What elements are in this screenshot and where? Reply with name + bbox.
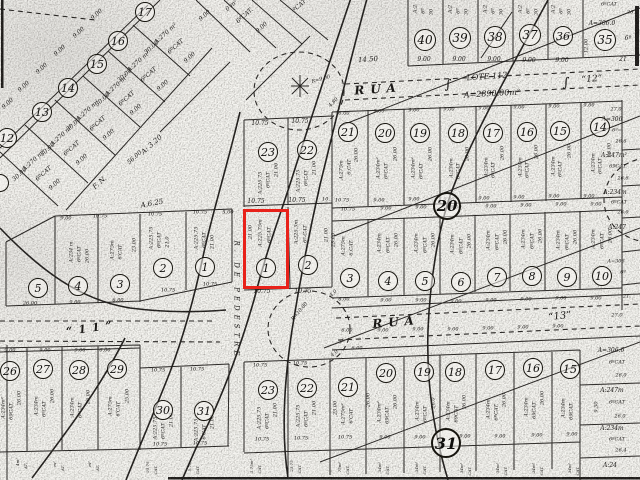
map-label: 6º-CAT [304, 225, 309, 243]
map-label: CAT. [298, 464, 302, 473]
lot-number: 2 [298, 255, 318, 275]
map-label: 6ºCAT [385, 163, 390, 179]
map-label: 26.00 [394, 147, 399, 161]
map-label: A:225.75 [150, 227, 155, 250]
map-label: A:275m [342, 236, 347, 256]
map-label: 69CAT. [570, 402, 575, 420]
map-label: 26.00 [574, 230, 579, 244]
map-label: 9.00 [583, 104, 594, 109]
map-label: ∫ [563, 77, 570, 90]
map-label: A:234m [522, 229, 527, 249]
lot-number: 35 [594, 29, 616, 51]
map-label: CAT. [504, 466, 508, 475]
map-label: 9.00 [39, 349, 50, 354]
lot-number: 39 [449, 27, 471, 49]
lot-number: 20 [433, 192, 461, 220]
map-label: 5.75 [188, 463, 192, 472]
map-label: 9.00 [590, 297, 601, 302]
lot-number: 15 [560, 359, 580, 379]
map-label: 10.75 [151, 369, 165, 374]
lot-number: 20 [375, 123, 395, 143]
map-label: 26.00 [394, 395, 399, 409]
lot-number: 8 [522, 266, 542, 286]
map-label: 30 [430, 9, 435, 15]
map-label: 9.00 [590, 203, 601, 208]
map-label: A:234m [35, 396, 40, 416]
map-label: 9.00 [520, 204, 531, 209]
map-label: 21.00 [275, 163, 280, 177]
map-label: 6ºCAT [305, 411, 310, 427]
map-label: A:234m [600, 426, 624, 432]
map-label: 6ºCAT [266, 413, 271, 429]
map-label: 9.00 [443, 108, 454, 113]
map-label: 10.75 [341, 208, 355, 213]
map-label: A:247m [600, 388, 624, 394]
map-label: 9.00 [531, 434, 542, 439]
map-label: 26.6 [617, 177, 628, 182]
map-label: A=306.0 [589, 21, 616, 27]
map-label: 10.75 [193, 442, 207, 447]
map-label: 26.00 [367, 393, 372, 407]
map-label: A:2 [484, 5, 489, 13]
map-label: 10.75 [193, 211, 207, 216]
map-label: 21.00 [325, 228, 330, 242]
lot-number: 18 [445, 362, 465, 382]
map-label: 26.00 [86, 249, 91, 263]
lot-number: 23 [258, 380, 278, 400]
map-label: 6ºCAT [387, 237, 392, 253]
map-label: 26.00 [395, 233, 400, 247]
map-label: 26.00 [429, 147, 434, 161]
map-label: A:234m [447, 401, 452, 421]
lot-number: 21 [338, 377, 358, 397]
lot-number: 17 [135, 2, 155, 22]
map-label: 6ºCAT [609, 401, 625, 406]
map-label: 9.00 [373, 199, 384, 204]
map-label: 6.00 [341, 329, 352, 334]
map-label: 6º [560, 8, 565, 14]
map-label: A:225.75 [258, 407, 263, 430]
map-label: 9.00 [566, 433, 577, 438]
map-label: 9.00 [373, 110, 384, 115]
lot-number: 40 [414, 29, 436, 51]
map-label: A:234m² [377, 157, 382, 179]
map-label: A:234m [603, 190, 627, 196]
map-label: A:234m [415, 233, 420, 253]
map-label: 26.00 [51, 389, 56, 403]
lot-number: 29 [107, 359, 127, 379]
map-label: 9.00 [555, 58, 568, 64]
map-label: 9.00 [380, 299, 391, 304]
map-label: 21.0 [166, 236, 171, 247]
map-label: 9.50 [595, 401, 600, 412]
map-label: 10.75 [247, 199, 264, 205]
map-label: 6ºCAT [559, 161, 564, 177]
map-label: A:234m [519, 157, 524, 177]
map-label: 30 [535, 9, 540, 15]
map-label: 9.00 [548, 195, 559, 200]
map-label: A:234m [416, 401, 421, 421]
map-label: 26.00 [568, 144, 573, 158]
map-label: 34m² [532, 463, 536, 474]
map-label: 6ºCAT [492, 162, 497, 178]
map-label: 10.75 [190, 368, 204, 373]
map-label: 6º [625, 36, 632, 42]
map-label: 9.00 [513, 196, 524, 201]
map-label: 21.00 [313, 161, 318, 175]
map-label: 14.50 [358, 56, 378, 64]
map-label: 6ºCAT [267, 172, 272, 188]
map-label: 26.00 [23, 302, 37, 307]
lot-number: 15 [87, 54, 107, 74]
map-label: 9.00 [417, 57, 430, 63]
map-label: A=306 [607, 260, 624, 265]
map-label: 26.00 [503, 393, 508, 407]
map-label: 9.00 [517, 326, 528, 331]
map-label: 6ºCAT [601, 3, 617, 8]
map-label: 26.00 [535, 145, 540, 159]
map-label: 69CAT. [533, 401, 538, 419]
map-label: 6ºCAT [162, 423, 167, 439]
map-label: CAT. [258, 464, 262, 473]
map-label: 25.75 [290, 460, 294, 471]
map-label: 6ºCAT [43, 401, 48, 417]
map-label: 6ºCAT [526, 162, 531, 178]
map-label: 6.CAT [348, 159, 353, 174]
map-label: 25.00 [126, 389, 131, 403]
map-label: 26.0 [432, 397, 437, 408]
map-label: 4m² [16, 458, 20, 466]
map-label: 6ºCAT [424, 406, 429, 422]
map-label: 6ºCAT [601, 233, 606, 249]
map-label: 34m² [496, 463, 500, 474]
map-label: 21.00 [274, 403, 279, 417]
map-label: 10.75 [293, 362, 307, 367]
map-label: A:275m [111, 240, 116, 260]
map-label: 6ºCAT [496, 234, 501, 250]
map-label: 6ºCAT [611, 201, 627, 206]
map-label: 6º [620, 271, 626, 276]
map-label: 6.00 [351, 347, 362, 352]
map-label: A:234m [451, 234, 456, 254]
map-label: 69CAT. [609, 165, 627, 170]
map-label: 6'CAT [117, 401, 122, 416]
lot-number: 26 [0, 361, 20, 381]
map-label: 6ºCAT [531, 233, 536, 249]
map-label: 6.00 [338, 298, 349, 303]
map-label: AT. [24, 463, 28, 469]
map-label: A:225.75 [259, 172, 264, 195]
lot-number: 16 [517, 122, 537, 142]
map-label: 30 [500, 9, 505, 15]
map-label: A:2 [552, 5, 557, 13]
lot-number: 37 [519, 24, 541, 46]
map-label: 10.75 [153, 443, 167, 448]
map-label: 26.4 [615, 449, 626, 454]
map-label: 9.00 [447, 328, 458, 333]
map-label: 9.00 [522, 58, 535, 64]
highlight-box [243, 209, 289, 289]
map-label: 26. [627, 11, 635, 16]
lot-number: 17 [485, 360, 505, 380]
map-label: 21.00 [211, 235, 216, 249]
map-label: 10.75 [93, 215, 107, 220]
map-label: 12.00 [585, 39, 590, 53]
map-label: A:275m² [342, 403, 347, 425]
map-label: A:2 [519, 5, 524, 13]
map-label: R. DE PEDESTRE [233, 240, 240, 359]
map-label: CAT. [196, 465, 200, 474]
map-label: 9.00 [408, 198, 419, 203]
map-label: 9.00 [415, 299, 426, 304]
map-label: 26.00 [463, 395, 468, 409]
map-label: 6ºCAT [460, 238, 465, 254]
lot-number: 2 [153, 258, 173, 278]
map-label: 30 [568, 9, 573, 15]
map-label: 6º [492, 8, 497, 14]
map-label: 10.75 [161, 289, 175, 294]
map-label: A:234m [592, 229, 597, 249]
lot-number: 23 [258, 142, 278, 162]
map-label: 9.00 [485, 205, 496, 210]
map-label: 10.75 [335, 199, 349, 204]
map-label: 26.00 [504, 230, 509, 244]
map-label: A:225.75 [297, 170, 302, 193]
map-label: A:225.75 [195, 227, 200, 250]
map-label: 25.75 [146, 461, 150, 472]
map-label: 6'CAT [203, 424, 208, 439]
map-label: 9.00 [69, 301, 80, 306]
map-label: 26.6 [615, 140, 626, 145]
map-label: 10.75 [251, 121, 268, 127]
map-label: A:234m [450, 158, 455, 178]
map-label: 26.0 [617, 211, 628, 216]
map-label: 27.0 [610, 108, 621, 113]
lot-number: 4 [378, 271, 398, 291]
lot-number: 20 [376, 363, 396, 383]
lot-number: 10 [592, 266, 612, 286]
map-label: A:24 [603, 463, 617, 469]
map-label: 9.00 [459, 435, 470, 440]
map-label: 23.00 [334, 401, 339, 415]
map-label: A:275m [340, 160, 345, 180]
lot-number: 17 [483, 123, 503, 143]
map-label: 5.75m² [250, 459, 254, 473]
map-label: A:234m [592, 153, 597, 173]
map-label: A:225.75 [154, 417, 159, 440]
map-label: 6ºCAT [599, 158, 604, 174]
map-label: A:2 [449, 5, 454, 13]
map-label: ∫ [445, 79, 452, 92]
map-label: 6'CAT [119, 244, 124, 259]
map-label: 9.00 [408, 109, 419, 114]
map-label: 69CAT [455, 406, 460, 423]
map-label: 6.00 [338, 112, 349, 117]
map-label: “12” [581, 75, 602, 85]
map-label: 6ºCAT [420, 163, 425, 179]
lot-number: 5 [415, 271, 435, 291]
map-label: A:234m [552, 156, 557, 176]
map-label: A:234m [562, 398, 567, 418]
lot-number: 4 [68, 276, 88, 296]
map-label: 10.75 [294, 437, 308, 442]
map-label: CAT. [468, 466, 472, 475]
map-label: 6º [527, 8, 532, 14]
map-label: 9.00 [4, 349, 15, 354]
map-label: 10.75 [148, 213, 162, 218]
map-label: 69CAT. [386, 406, 391, 424]
map-label: 21 [619, 57, 627, 63]
lot-number: 38 [484, 26, 506, 48]
lot-number: 3 [110, 274, 130, 294]
map-label: 9.00 [452, 57, 465, 63]
map-label: 26.00 [466, 147, 471, 161]
lot-number: 7 [487, 267, 507, 287]
map-label: 9.00 [485, 299, 496, 304]
map-label: 34m² [378, 462, 382, 473]
map-label: 21. [623, 295, 631, 300]
map-label: 9.00 [478, 107, 489, 112]
lot-number: 5 [28, 278, 48, 298]
map-label: 23.00 [332, 233, 337, 247]
map-label: 9.00 [482, 327, 493, 332]
map-label: 9.00 [60, 217, 71, 222]
map-label: 6ºCAT [609, 438, 625, 443]
map-label: A:234m [487, 230, 492, 250]
lot-number: 13 [32, 102, 52, 122]
map-label: 26.00 [539, 229, 544, 243]
lot-number: 1 [195, 257, 215, 277]
lot-number: 19 [410, 123, 430, 143]
map-label: 6ºCAT. [495, 404, 500, 421]
map-label: 6ºCAT [203, 232, 208, 248]
map-label: 6ºCAT [305, 170, 310, 186]
map-label: A:234m [487, 399, 492, 419]
map-label: 26.00 [355, 148, 360, 162]
map-label: m² [88, 461, 92, 466]
map-label: A:225.5m [295, 220, 300, 244]
cadastral-map-canvas: A:270 m²6ºCATA:270 m²6ºCATA:270 m²6ºCATA… [0, 0, 640, 480]
lot-number: 31 [431, 428, 461, 458]
map-label: AT. [61, 465, 65, 471]
map-label: A:234m² [412, 157, 417, 179]
map-label: 10.75 [291, 119, 308, 125]
map-label: A=306.6 [598, 348, 625, 354]
lot-number: 6 [451, 272, 471, 292]
map-label: A:275m [109, 396, 114, 416]
map-label: CAT. [154, 465, 158, 474]
map-label: 26.00 [501, 146, 506, 160]
map-label: 9.00 [478, 197, 489, 202]
lot-number: 14 [58, 78, 78, 98]
map-label: 6.00 [112, 299, 123, 304]
lot-number: 22 [297, 378, 317, 398]
map-label: 26.00 [468, 234, 473, 248]
lot-number: 18 [448, 123, 468, 143]
map-label: 9.00 [487, 57, 500, 63]
map-label: 9.00 [380, 207, 391, 212]
map-label: 9.00 [520, 298, 531, 303]
map-label: A:247m² [601, 153, 627, 159]
map-label: 27.0 [611, 314, 622, 319]
lot-number: 16 [523, 358, 543, 378]
map-label: m² [53, 461, 57, 466]
map-label: 26.00 [18, 391, 23, 405]
map-label: 9.00 [494, 435, 505, 440]
lot-number: 21 [338, 122, 358, 142]
map-label: 34m² [568, 463, 572, 474]
map-label: 9.00 [555, 297, 566, 302]
lot-number: 31 [194, 401, 214, 421]
map-label: A:234m² [378, 401, 383, 423]
map-label: A:234m [557, 230, 562, 250]
map-label: CAT. [540, 466, 544, 475]
map-label: 6ºCAT [457, 163, 462, 179]
map-label: A:225.75 [195, 419, 200, 442]
lot-number: 36 [553, 26, 573, 46]
map-label: 6ºCAT [79, 402, 84, 418]
map-label: 9.00 [379, 436, 390, 441]
map-label: A:234m [71, 397, 76, 417]
lot-number: 30 [153, 400, 173, 420]
map-label: 30 [465, 9, 470, 15]
map-label: A:234m² [2, 397, 7, 419]
map-label: 21.00 [313, 401, 318, 415]
map-label: 75m² [338, 462, 342, 473]
map-label: 69CAT. [10, 402, 15, 420]
map-label: 26.00 [432, 233, 437, 247]
map-label: CAT. [423, 465, 427, 474]
map-label: 6º [422, 8, 427, 14]
map-label: 26.00 [609, 229, 614, 243]
map-label: 10.75 [294, 289, 311, 295]
map-label: 9.00 [415, 206, 426, 211]
map-label: 10.75 [253, 364, 267, 369]
lot-number: 22 [297, 140, 317, 160]
map-label: 6.00 [99, 349, 110, 354]
map-label: 26.0 [615, 374, 626, 379]
map-label: 26.00 [87, 390, 92, 404]
map-label: 6ºCAT [78, 246, 83, 262]
map-label: A:234 m [70, 241, 75, 262]
map-label: 10.75 [338, 436, 352, 441]
lot-number: 27 [33, 359, 53, 379]
map-label: CAT. [346, 465, 350, 474]
lot-number: 28 [69, 360, 89, 380]
map-label: 9.00 [74, 349, 85, 354]
map-label: 6ºCAT [609, 361, 625, 366]
map-label: 10.75 [288, 198, 305, 204]
lot-number: 15 [550, 121, 570, 141]
map-label: A:234m [485, 157, 490, 177]
map-label: 6ºCAT [424, 237, 429, 253]
lot-number: 16 [108, 31, 128, 51]
map-label: A:234m [525, 397, 530, 417]
map-label: 9.00 [377, 329, 388, 334]
map-label: 6.CAT [350, 240, 355, 255]
lot-number: 19 [414, 362, 434, 382]
map-label: 6º [457, 8, 462, 14]
map-label: 10.75 [253, 289, 270, 295]
map-label: 9.00 [412, 328, 423, 333]
map-label: 6º= [612, 129, 622, 134]
map-label: CAT. [576, 466, 580, 475]
map-label: 9.00 [552, 325, 563, 330]
map-label: 9.00 [548, 105, 559, 110]
map-label: A:225.75 [297, 405, 302, 428]
map-label: 9.00 [513, 106, 524, 111]
map-label: 9.00 [583, 195, 594, 200]
